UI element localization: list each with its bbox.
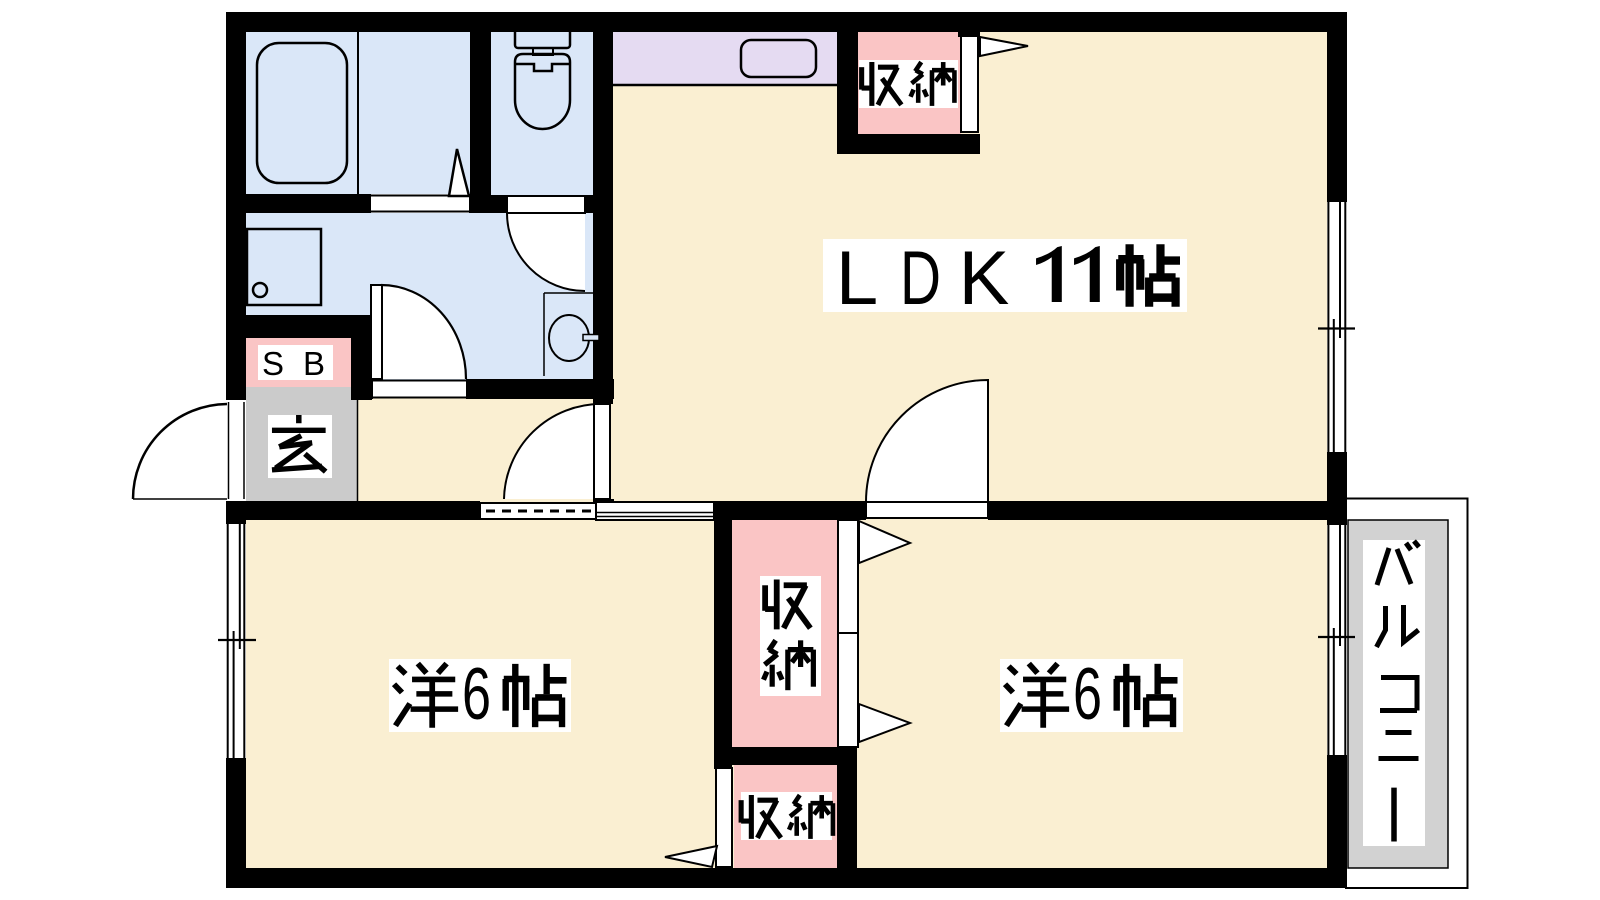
svg-text:S: S: [262, 345, 284, 382]
svg-text:K: K: [959, 236, 1010, 321]
svg-text:D: D: [900, 236, 941, 321]
svg-text:6: 6: [1073, 654, 1102, 735]
svg-text:6: 6: [462, 654, 491, 735]
svg-text:B: B: [303, 345, 325, 382]
svg-text:L: L: [836, 236, 878, 321]
